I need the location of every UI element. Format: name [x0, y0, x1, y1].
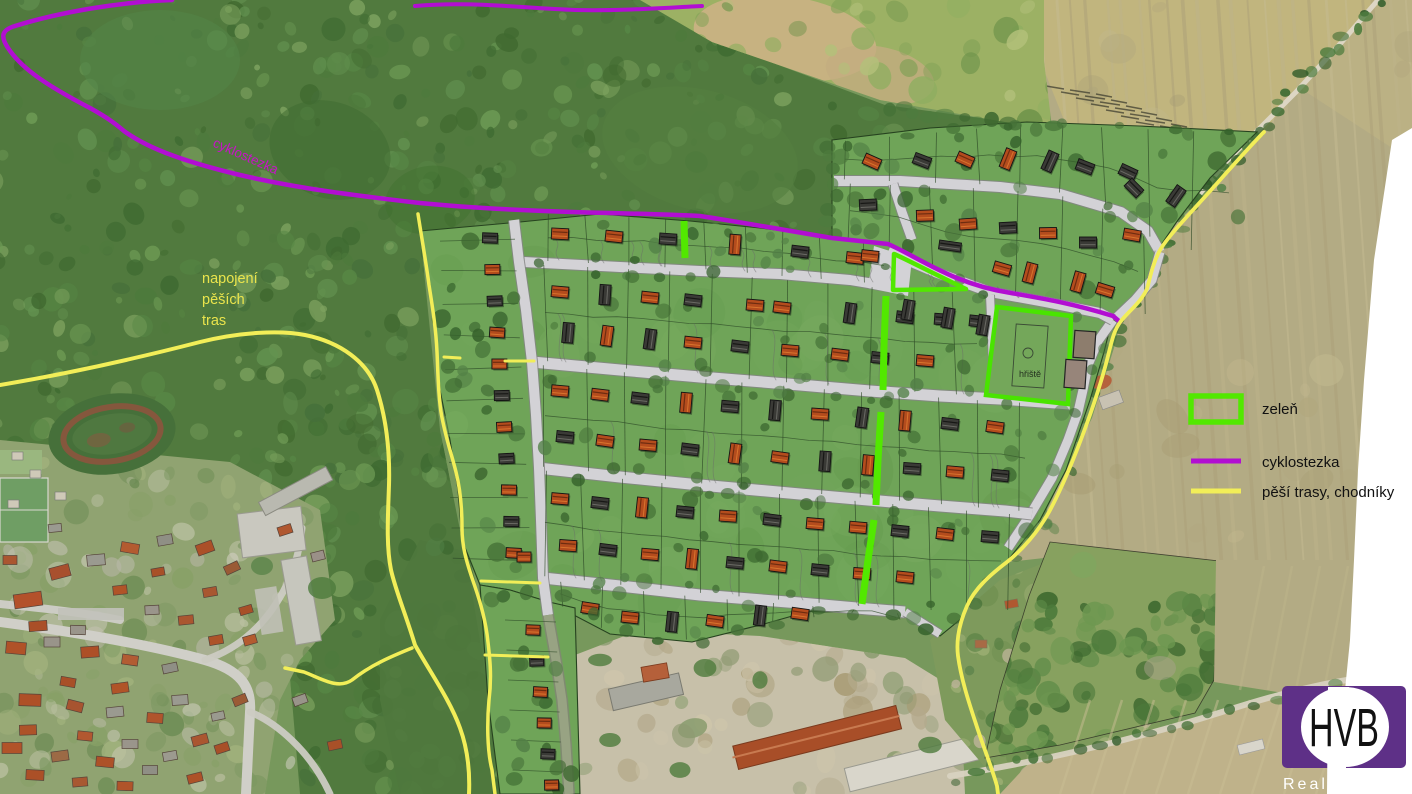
- svg-text:pěší trasy, chodníky: pěší trasy, chodníky: [1262, 484, 1395, 501]
- svg-text:HVB: HVB: [1309, 698, 1379, 758]
- svg-text:zeleň: zeleň: [1262, 401, 1298, 418]
- svg-text:napojení: napojení: [202, 271, 258, 287]
- svg-text:Real: Real: [1283, 776, 1328, 793]
- svg-text:cyklostezka: cyklostezka: [1262, 454, 1340, 471]
- svg-text:tras: tras: [202, 313, 226, 329]
- svg-text:pěších: pěších: [202, 292, 245, 308]
- svg-text:hřiště: hřiště: [1019, 369, 1041, 379]
